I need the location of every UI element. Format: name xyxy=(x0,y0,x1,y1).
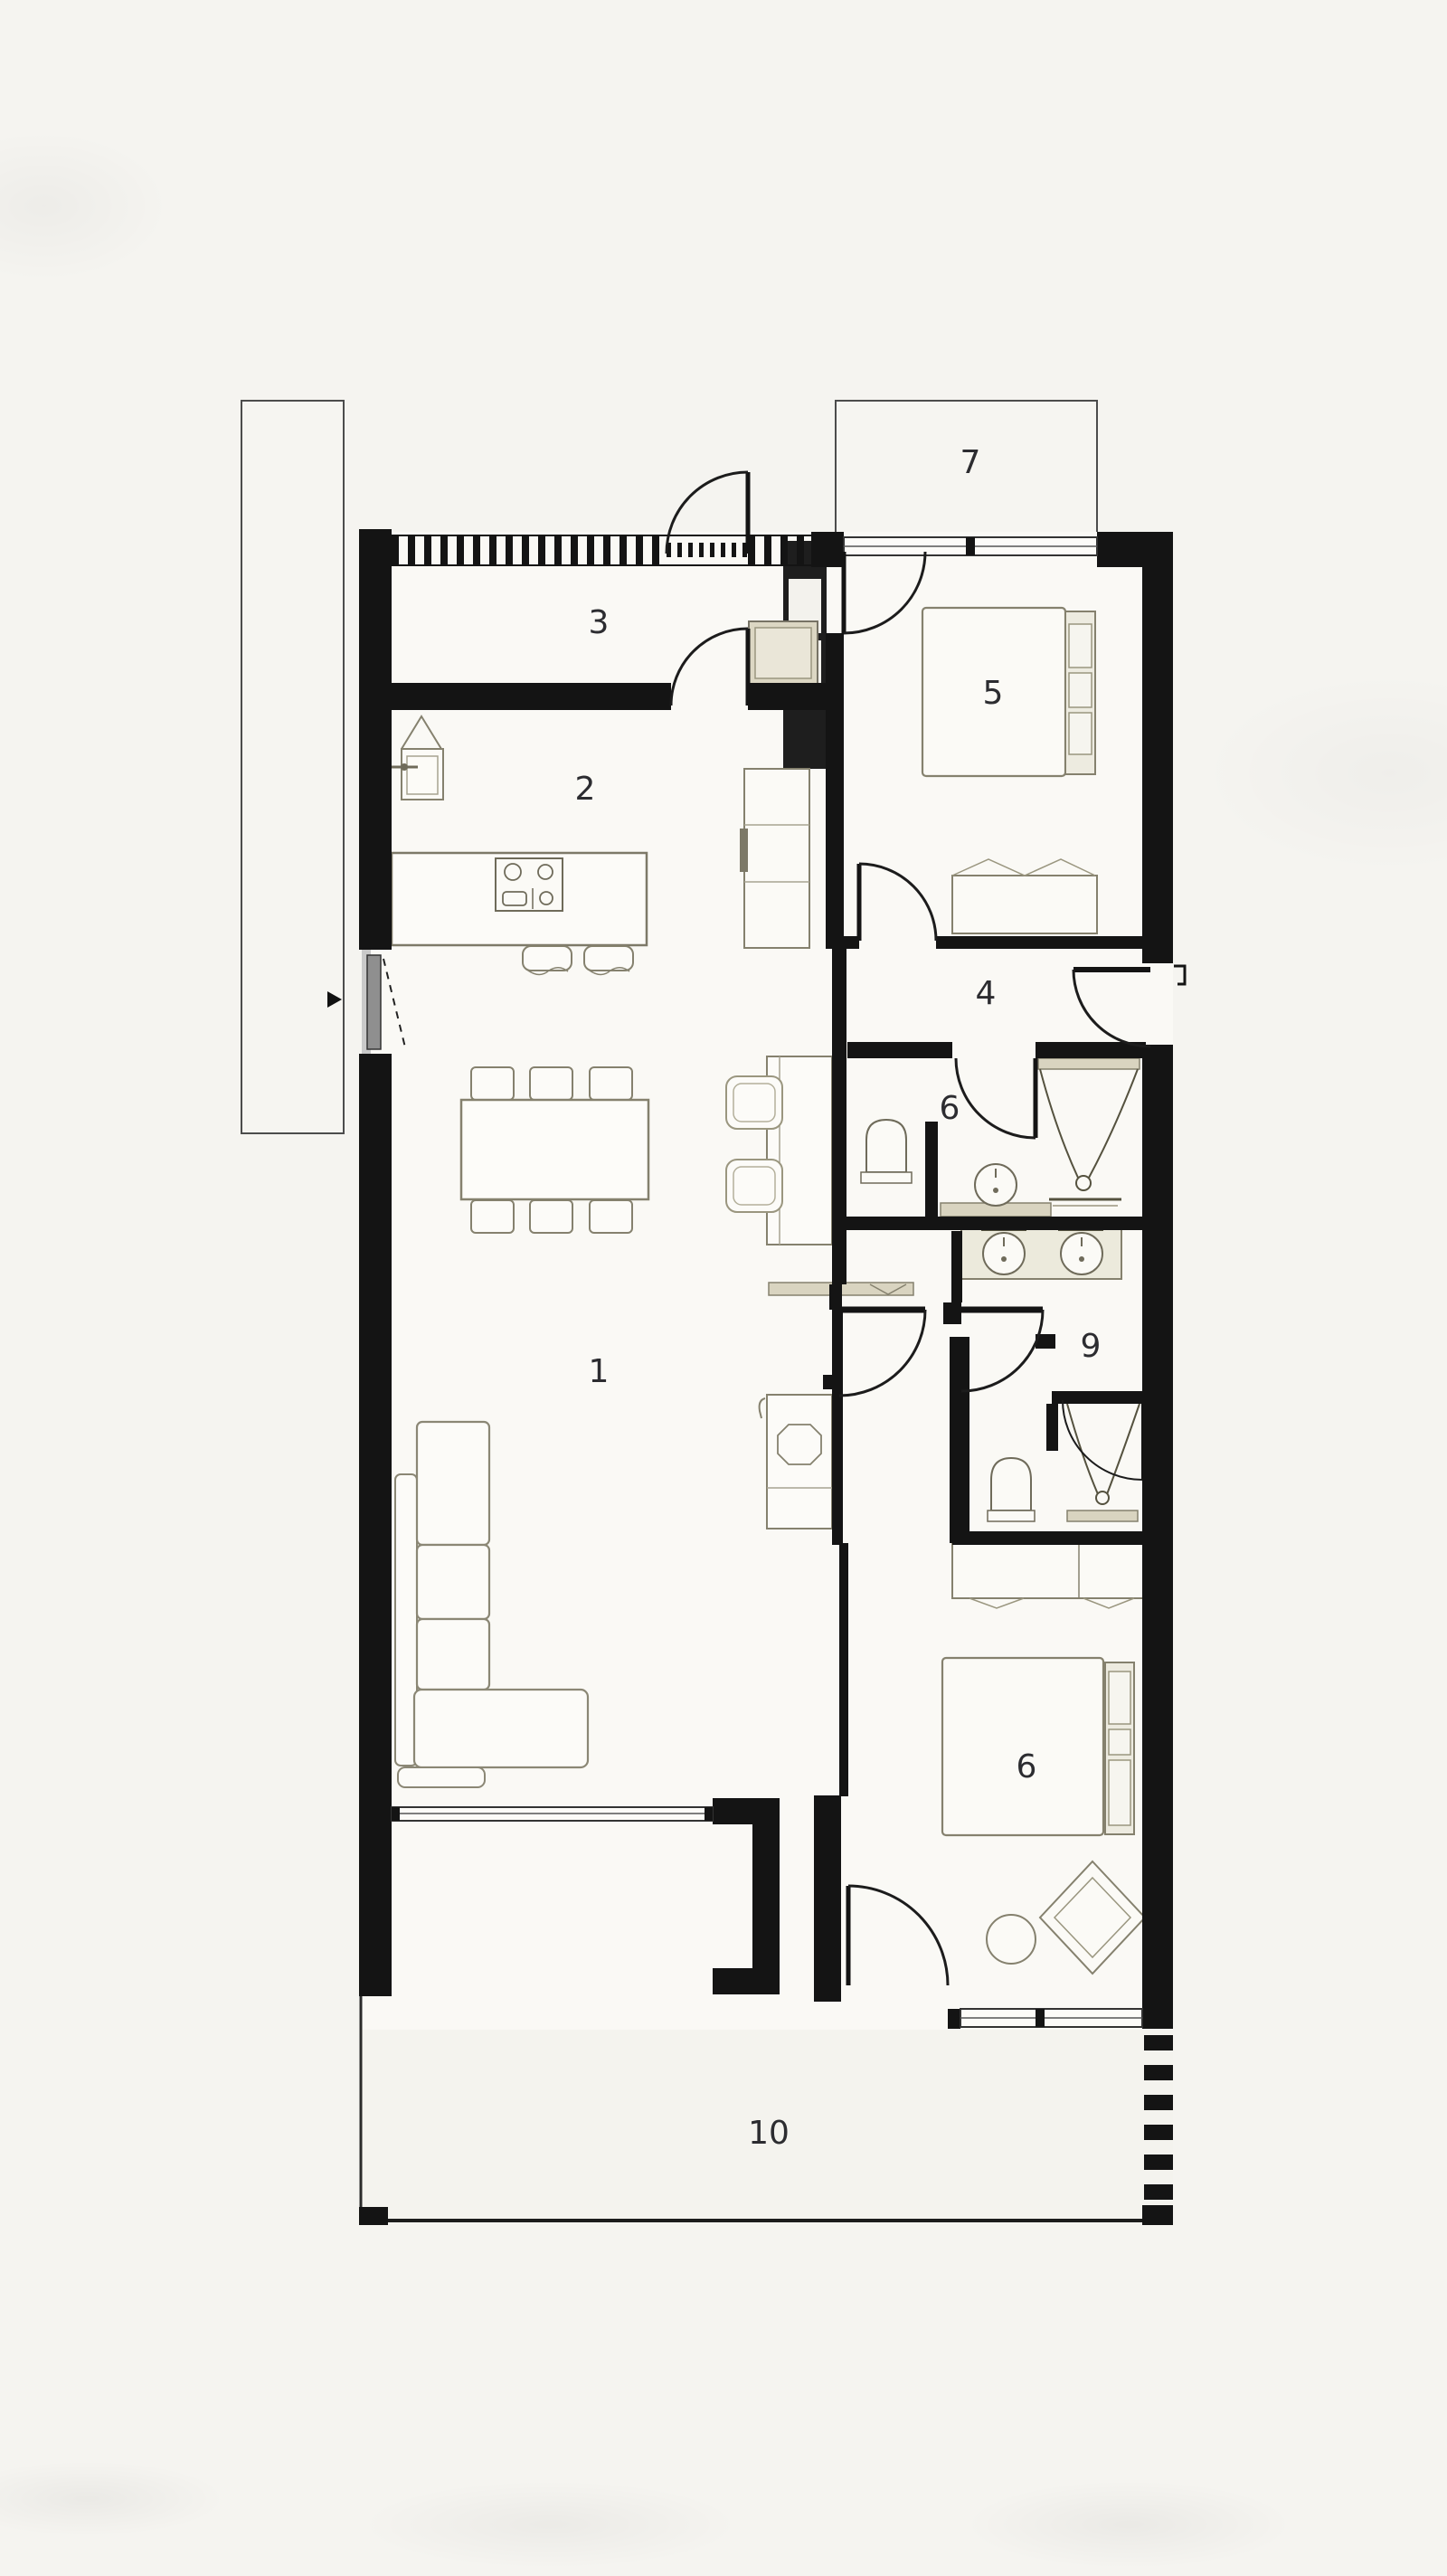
screen-wall xyxy=(732,543,736,557)
dining-chair xyxy=(471,1067,514,1100)
terrace-dashed-wall xyxy=(1144,2065,1173,2080)
wall-segment xyxy=(748,683,826,710)
wall-segment xyxy=(847,1042,952,1058)
door-post xyxy=(948,2009,960,2029)
counter-handle xyxy=(740,829,748,872)
terrace-corner-block xyxy=(1142,2205,1173,2225)
wall-segment xyxy=(832,1310,843,1545)
dining-chair xyxy=(471,1200,514,1233)
screen-wall xyxy=(587,535,594,565)
room-label-balcony: 7 xyxy=(960,444,981,481)
screen-wall xyxy=(619,535,627,565)
door-post xyxy=(943,1302,961,1324)
pillow xyxy=(1109,1729,1130,1755)
door-bracket xyxy=(1174,966,1185,984)
bar-stool xyxy=(523,946,572,971)
wall-segment xyxy=(1046,1404,1058,1451)
terrace-dashed-wall xyxy=(1144,2035,1173,2050)
pillow xyxy=(1069,713,1092,754)
terrace-dashed-wall xyxy=(1144,2125,1173,2140)
pillow xyxy=(1069,673,1092,707)
room-label-bedroom-2: 6 xyxy=(1017,1748,1037,1785)
wall-segment xyxy=(1142,532,1173,963)
wall-segment xyxy=(839,1543,848,1796)
terrace-dashed-wall xyxy=(1144,2184,1173,2200)
room-label-kitchen: 2 xyxy=(575,771,596,808)
wall-segment xyxy=(814,1795,841,2002)
wall-segment xyxy=(925,1122,938,1217)
screen-wall xyxy=(554,535,562,565)
toilet xyxy=(866,1120,906,1172)
window-mullion xyxy=(705,1807,713,1821)
wall-segment xyxy=(826,633,844,936)
room-label-bedroom-1: 5 xyxy=(983,675,1004,712)
sink-drain xyxy=(993,1188,998,1193)
screen-wall xyxy=(688,543,693,557)
screen-wall xyxy=(699,543,704,557)
sofa-module xyxy=(417,1619,489,1690)
faucet-knob xyxy=(401,763,408,771)
screen-wall xyxy=(408,535,415,565)
window-mullion xyxy=(1036,2009,1045,2027)
dresser xyxy=(952,1542,1144,1598)
side-walkway xyxy=(241,401,344,1133)
wall-segment xyxy=(826,539,844,559)
pillow xyxy=(1109,1760,1130,1825)
screen-wall xyxy=(424,535,431,565)
shower-base xyxy=(1067,1511,1138,1521)
sofa-ottoman xyxy=(398,1767,485,1787)
toilet xyxy=(991,1458,1031,1511)
wall-segment xyxy=(359,1821,392,1996)
screen-wall xyxy=(440,535,448,565)
dining-chair xyxy=(530,1200,572,1233)
dining-table xyxy=(461,1100,648,1199)
bed-2-mattress xyxy=(942,1658,1103,1835)
dining-chair xyxy=(590,1200,632,1233)
wall-segment xyxy=(359,1054,392,1821)
wall-segment xyxy=(752,1820,780,1970)
pillow xyxy=(1109,1672,1130,1724)
screen-wall xyxy=(721,543,725,557)
floor-plan-page: 12345676910 xyxy=(0,0,1447,2576)
wall-segment xyxy=(829,1284,842,1310)
room-label-hallway: 4 xyxy=(976,975,997,1012)
sink-drain xyxy=(1001,1256,1007,1262)
screen-wall xyxy=(571,535,578,565)
screen-wall xyxy=(457,535,464,565)
pillow xyxy=(1069,624,1092,668)
sofa-chaise xyxy=(414,1690,588,1767)
window-mullion xyxy=(966,537,975,555)
sink-drain xyxy=(1079,1256,1084,1262)
terrace-dashed-wall xyxy=(1144,2095,1173,2110)
sofa-module xyxy=(417,1545,489,1619)
screen-wall xyxy=(489,535,497,565)
dining-chair xyxy=(590,1067,632,1100)
room-label-terrace: 10 xyxy=(748,2115,790,2152)
screen-wall xyxy=(797,535,804,565)
screen-wall xyxy=(506,535,513,565)
screen-wall xyxy=(473,535,480,565)
sofa-module xyxy=(417,1422,489,1545)
toilet-tank xyxy=(861,1172,912,1183)
dining-chair xyxy=(530,1067,572,1100)
screen-wall xyxy=(677,543,682,557)
wall-segment xyxy=(832,936,846,1284)
screen-wall xyxy=(636,535,643,565)
toilet-tank xyxy=(988,1511,1035,1521)
wall-segment xyxy=(1052,1391,1173,1404)
terrace-corner-block xyxy=(359,2207,388,2225)
shower-threshold xyxy=(1038,1058,1140,1069)
screen-wall xyxy=(603,535,610,565)
wall-segment xyxy=(936,936,1146,949)
screen-wall xyxy=(764,535,771,565)
room-label-bathroom: 6 xyxy=(940,1090,960,1127)
bar-stool xyxy=(584,946,633,971)
room-label-dressing: 9 xyxy=(1081,1328,1102,1365)
screen-wall xyxy=(522,535,529,565)
wall-segment xyxy=(832,1217,1144,1230)
terrace-dashed-wall xyxy=(1144,2155,1173,2170)
entry-door-leaf xyxy=(367,955,381,1049)
wall-segment xyxy=(392,683,671,710)
side-table xyxy=(987,1915,1036,1964)
floor-plan-svg: 12345676910 xyxy=(0,0,1447,2576)
screen-wall xyxy=(538,535,545,565)
screen-wall xyxy=(780,535,788,565)
wall-segment xyxy=(359,529,392,950)
room-label-entry-hall: 3 xyxy=(589,604,610,641)
room-label-living-room: 1 xyxy=(589,1353,610,1390)
screen-wall xyxy=(710,543,714,557)
screen-wall xyxy=(392,535,399,565)
console-cabinet xyxy=(767,1395,832,1529)
entry-closet-front xyxy=(755,628,811,678)
kitchen-counter xyxy=(744,769,809,948)
wall-segment xyxy=(951,1231,962,1302)
window-mullion xyxy=(392,1807,400,1821)
wall-segment xyxy=(713,1968,780,1994)
bed-1-bench xyxy=(952,876,1097,933)
cooktop xyxy=(496,858,563,911)
wall-segment xyxy=(952,1531,1173,1545)
screen-wall xyxy=(652,535,659,565)
wall-segment xyxy=(950,1337,969,1543)
